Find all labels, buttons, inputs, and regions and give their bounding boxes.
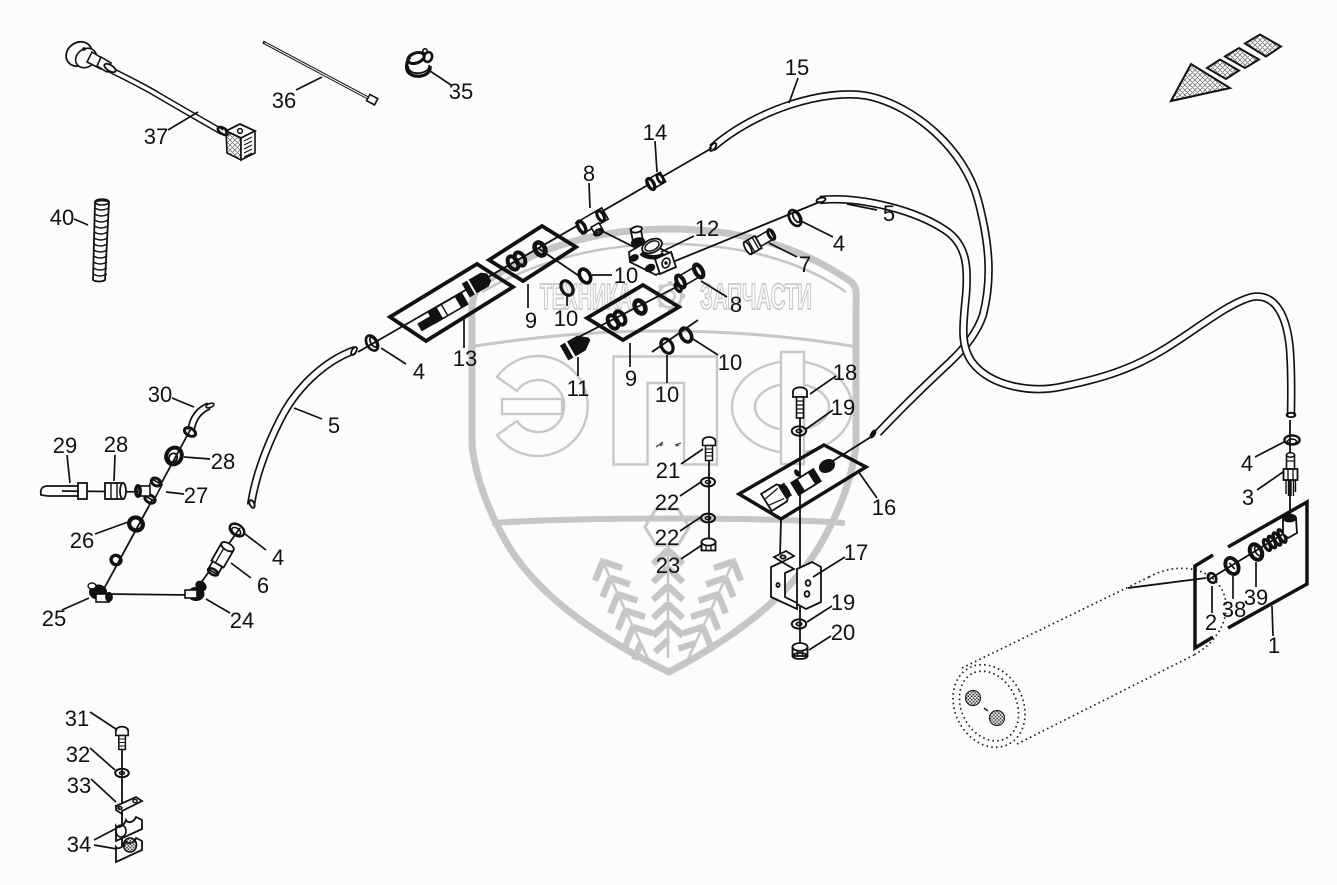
svg-text:4: 4 <box>833 231 845 256</box>
svg-text:11: 11 <box>567 376 590 401</box>
svg-text:13: 13 <box>453 346 477 371</box>
svg-text:4: 4 <box>1241 451 1253 476</box>
svg-text:35: 35 <box>449 79 473 104</box>
svg-text:5: 5 <box>328 413 340 438</box>
svg-text:8: 8 <box>730 292 742 317</box>
svg-text:ЗАПЧАСТИ: ЗАПЧАСТИ <box>700 276 812 317</box>
svg-text:36: 36 <box>272 88 296 113</box>
svg-text:9: 9 <box>525 308 537 333</box>
svg-text:4: 4 <box>272 545 284 570</box>
svg-text:10: 10 <box>655 382 679 407</box>
svg-text:19: 19 <box>831 590 855 615</box>
svg-text:28: 28 <box>211 449 235 474</box>
svg-text:29: 29 <box>53 433 77 458</box>
svg-text:31: 31 <box>65 706 89 731</box>
svg-text:8: 8 <box>583 161 595 186</box>
svg-text:12: 12 <box>695 216 719 241</box>
svg-text:2: 2 <box>1205 610 1217 635</box>
svg-text:40: 40 <box>50 205 74 230</box>
svg-text:37: 37 <box>144 124 168 149</box>
svg-text:10: 10 <box>554 306 578 331</box>
svg-text:32: 32 <box>66 742 90 767</box>
svg-text:3: 3 <box>1242 485 1254 510</box>
svg-text:10: 10 <box>718 350 742 375</box>
svg-text:21: 21 <box>656 458 680 483</box>
svg-text:25: 25 <box>42 606 66 631</box>
svg-text:1: 1 <box>1268 633 1280 658</box>
svg-text:17: 17 <box>844 540 868 565</box>
svg-text:14: 14 <box>643 120 667 145</box>
svg-text:18: 18 <box>833 360 857 385</box>
svg-text:5: 5 <box>883 201 895 226</box>
svg-text:7: 7 <box>799 252 811 277</box>
svg-text:23: 23 <box>656 553 680 578</box>
svg-text:9: 9 <box>625 366 637 391</box>
svg-text:39: 39 <box>1244 585 1268 610</box>
svg-text:26: 26 <box>70 528 94 553</box>
svg-text:19: 19 <box>831 395 855 420</box>
svg-text:16: 16 <box>872 495 896 520</box>
svg-text:4: 4 <box>413 359 425 384</box>
svg-text:24: 24 <box>230 608 254 633</box>
svg-text:38: 38 <box>1222 597 1246 622</box>
svg-text:20: 20 <box>831 620 855 645</box>
svg-text:30: 30 <box>148 382 172 407</box>
svg-text:22: 22 <box>655 525 679 550</box>
svg-text:10: 10 <box>614 263 638 288</box>
svg-text:33: 33 <box>67 773 91 798</box>
svg-text:22: 22 <box>655 490 679 515</box>
svg-text:6: 6 <box>257 573 269 598</box>
svg-text:15: 15 <box>785 55 809 80</box>
svg-text:27: 27 <box>184 483 208 508</box>
svg-text:28: 28 <box>104 432 128 457</box>
svg-text:34: 34 <box>67 832 91 857</box>
